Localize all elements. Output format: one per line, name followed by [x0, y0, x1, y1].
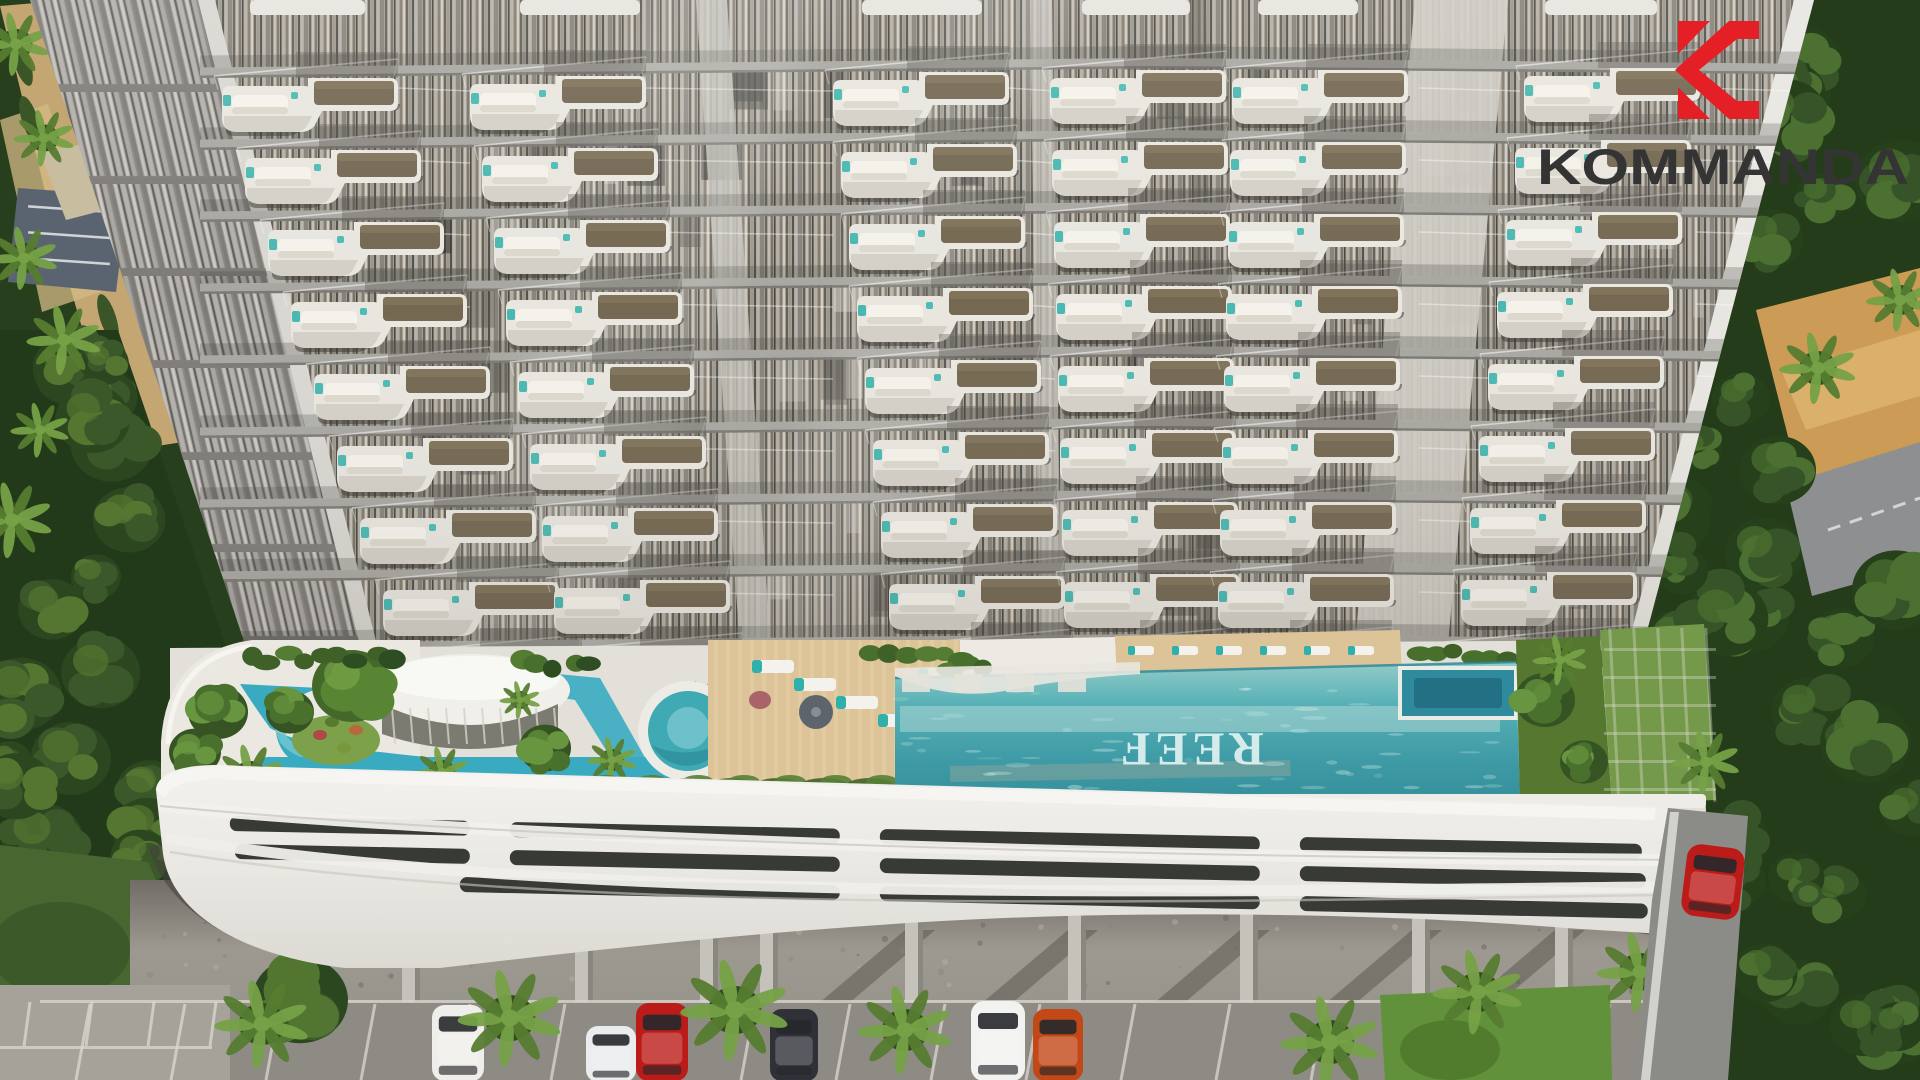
svg-text:REEF: REEF — [1116, 722, 1264, 775]
svg-text:KOMMANDA: KOMMANDA — [1537, 139, 1909, 195]
